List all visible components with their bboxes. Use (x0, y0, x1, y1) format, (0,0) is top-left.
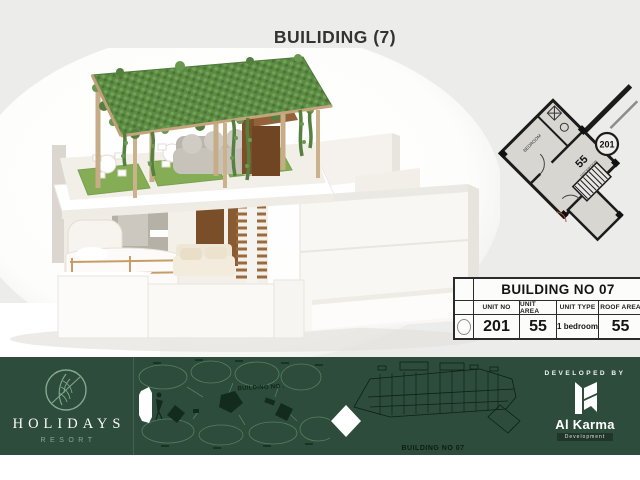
brand-name: HOLIDAYS (8, 416, 126, 433)
col-header-roof-area: ROOF AREA (598, 300, 640, 314)
render-scene (0, 48, 500, 357)
alkarma-k-icon (563, 380, 607, 416)
building-plan-caption: BUILDING NO 07 (401, 445, 464, 452)
bottom-white-strip (0, 455, 640, 480)
plan-unit-number: 201 (599, 140, 614, 150)
brand-subtitle: RESORT (36, 437, 96, 444)
col-header-unit-area: UNIT AREA (519, 300, 556, 314)
presentation-slide: BUILIDING (7) (0, 0, 640, 480)
value-unit-area: 55 (519, 314, 556, 338)
bathroom-sink (150, 230, 168, 237)
page-title: BUILIDING (7) (0, 27, 640, 48)
unit-floor-plan: BEDROOM 55 RECEPTION 201 (483, 74, 640, 262)
developer-subtitle: Development (557, 433, 613, 441)
building-plan-linework (354, 362, 520, 433)
site-plan-label: BUILDING NO . (237, 384, 284, 392)
person-icon (156, 393, 163, 421)
unit-highlight-marker (331, 405, 361, 437)
party-wall (581, 84, 633, 136)
developer-name: Al Karma (555, 417, 614, 432)
table-title: BUILDING NO 07 (473, 279, 640, 300)
unit-floor-plan-drawing: BEDROOM 55 RECEPTION 201 (483, 74, 640, 262)
unit-marker-cell (455, 314, 473, 338)
value-unit-no: 201 (473, 314, 519, 338)
unit-marker-circle-icon (457, 319, 471, 335)
footer-banner: HOLIDAYS RESORT (0, 357, 640, 455)
developer-panel: DEVELOPED BY Al Karma Development (530, 357, 640, 455)
site-plan-buildings (167, 391, 293, 423)
living-sofa (173, 244, 235, 276)
developed-by-label: DEVELOPED BY (545, 370, 626, 377)
table-stub (455, 300, 473, 314)
leaf-circle-icon (0, 357, 133, 415)
brand-panel: HOLIDAYS RESORT (0, 357, 133, 455)
col-header-unit-no: UNIT NO (473, 300, 519, 314)
unit-location-marker (139, 387, 152, 423)
col-header-unit-type: UNIT TYPE (556, 300, 598, 314)
master-site-plan: BUILDING NO . (133, 357, 330, 455)
table-stub (455, 279, 473, 300)
building-3d-render (0, 48, 500, 357)
building-floor-plan: BUILDING NO 07 (330, 357, 530, 455)
unit-info-table: BUILDING NO 07 UNIT NO UNIT AREA UNIT TY… (453, 277, 640, 340)
stair-pillar (247, 198, 257, 288)
value-unit-type: 1 bedroom (556, 314, 598, 338)
value-roof-area: 55 (598, 314, 640, 338)
